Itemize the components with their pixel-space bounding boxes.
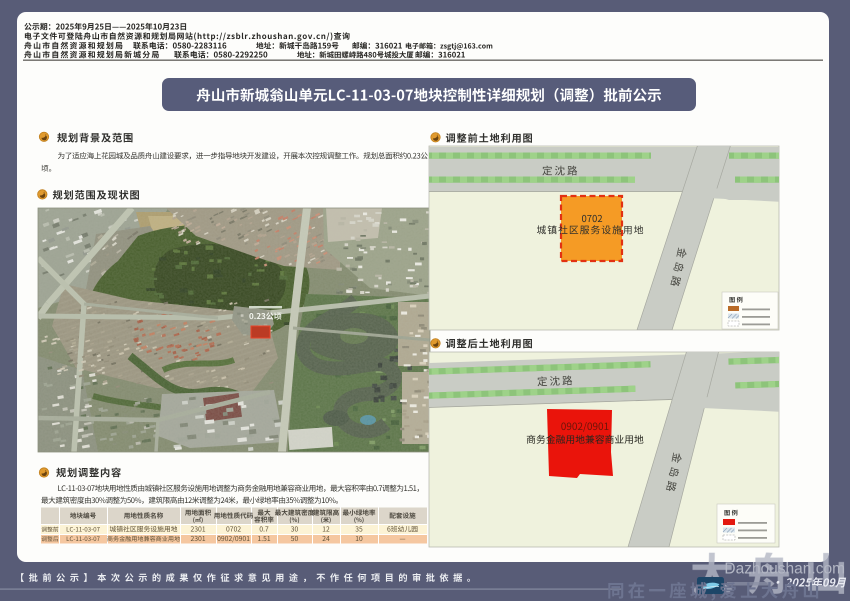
svg-text:Dazhoushan.com: Dazhoushan.com [724,561,845,578]
